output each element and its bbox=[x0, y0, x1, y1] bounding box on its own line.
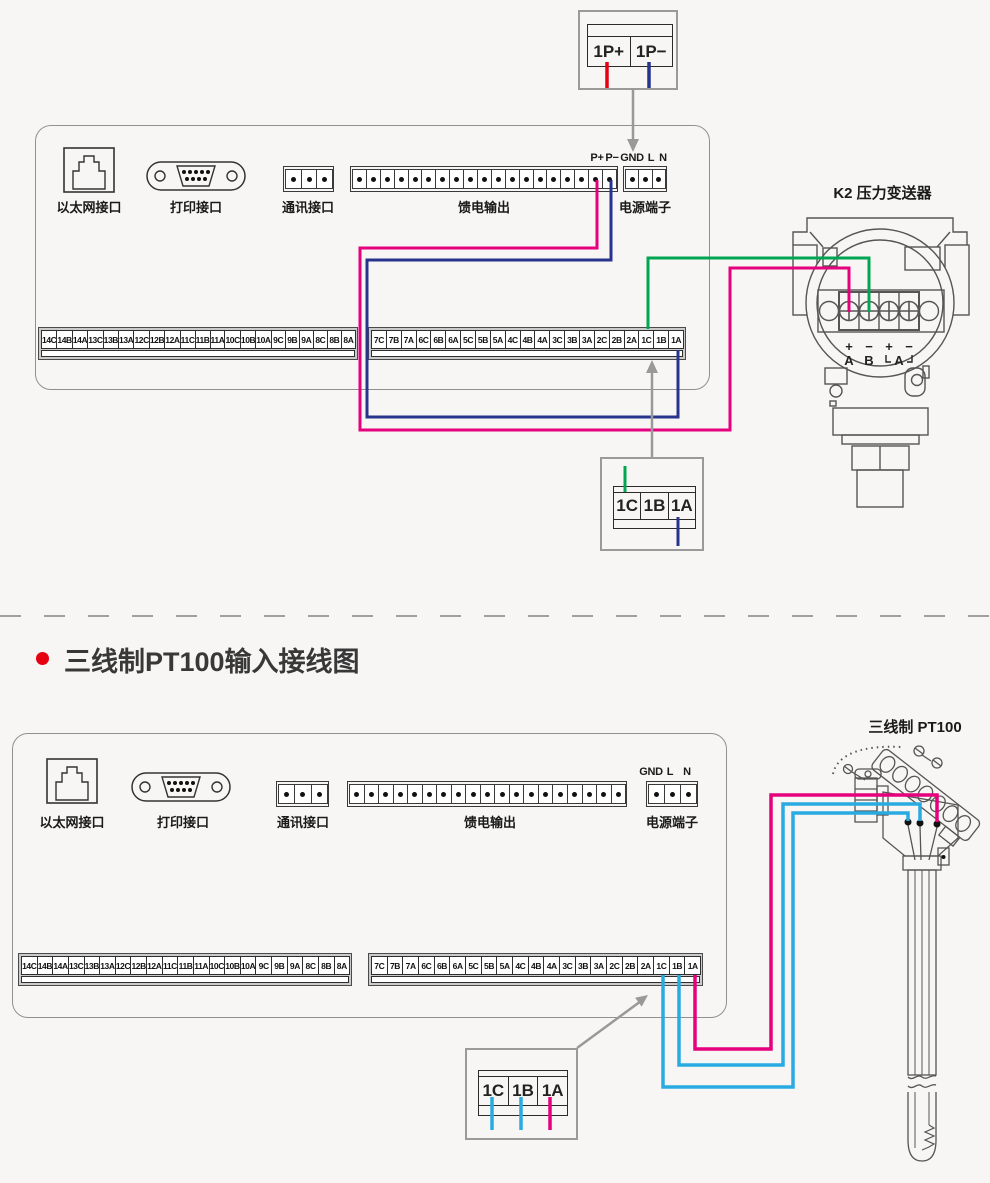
screw-terminal bbox=[519, 169, 534, 189]
screw-terminal bbox=[533, 169, 548, 189]
strip-left-cells: 14C14B14A13C13B13A12C12B12A11C11B11A10C1… bbox=[21, 956, 349, 975]
screw-terminal bbox=[463, 169, 478, 189]
screw-terminal bbox=[652, 169, 666, 189]
terminal-cell: 1C bbox=[479, 1077, 509, 1105]
screw-terminal bbox=[494, 784, 510, 804]
screw-terminal bbox=[393, 784, 409, 804]
terminal-cell: 6B bbox=[434, 956, 451, 975]
terminal-cell: 4C bbox=[512, 956, 529, 975]
terminal-cell: 14C bbox=[41, 330, 57, 349]
screw-terminal bbox=[408, 169, 423, 189]
terminal-cell: 4A bbox=[543, 956, 560, 975]
terminal-cell: 8C bbox=[302, 956, 319, 975]
section-bullet bbox=[36, 652, 49, 665]
printer-port-icon bbox=[131, 768, 231, 806]
terminal-cell: 4B bbox=[520, 330, 536, 349]
section-title: 三线制PT100输入接线图 bbox=[64, 640, 360, 679]
terminal-cell: 7C bbox=[371, 956, 388, 975]
printer-port-label: 打印接口 bbox=[146, 197, 246, 216]
terminal-cell: 11C bbox=[180, 330, 196, 349]
terminal-cell: 11B bbox=[195, 330, 211, 349]
terminal-cell: 1B bbox=[653, 330, 669, 349]
terminal-cell: 6C bbox=[418, 956, 435, 975]
screw-terminal bbox=[422, 784, 438, 804]
strip-sub-row bbox=[21, 976, 349, 983]
terminal-cell: 13A bbox=[118, 330, 134, 349]
transmitter-letter-a: A bbox=[844, 353, 854, 368]
p-plus-label: P+ bbox=[589, 152, 605, 164]
screw-terminal bbox=[465, 784, 481, 804]
screw-terminal bbox=[582, 784, 598, 804]
terminal-cell: 10B bbox=[240, 330, 256, 349]
terminal-cell: 7A bbox=[402, 956, 419, 975]
screw-terminal bbox=[611, 784, 627, 804]
terminal-cell: 13C bbox=[68, 956, 85, 975]
comm-port-label: 通讯接口 bbox=[258, 197, 358, 216]
screw-terminal bbox=[311, 784, 328, 804]
screw-terminal bbox=[364, 784, 380, 804]
printer-port-icon bbox=[146, 157, 246, 195]
loop-power-detail-box: 1P+1P− bbox=[578, 10, 678, 90]
transmitter-sign-2: − bbox=[865, 339, 873, 354]
transmitter-sign-3: + bbox=[885, 339, 893, 354]
power-terminals-bottom bbox=[646, 781, 698, 807]
terminal-cell: 12A bbox=[164, 330, 180, 349]
transmitter-title: K2 压力变送器 bbox=[790, 182, 975, 203]
screw-terminal bbox=[421, 169, 436, 189]
strip-right-cells: 7C7B7A6C6B6A5C5B5A4C4B4A3C3B3A2C2B2A1C1B… bbox=[371, 956, 700, 975]
screw-terminal bbox=[285, 169, 302, 189]
screw-terminal bbox=[278, 784, 295, 804]
terminal-cell: 1B bbox=[669, 956, 686, 975]
ethernet-port-icon bbox=[46, 758, 98, 804]
screw-terminal bbox=[523, 784, 539, 804]
screw-terminal bbox=[509, 784, 525, 804]
p-minus-label: P− bbox=[604, 152, 620, 164]
screw-terminal bbox=[664, 784, 681, 804]
screw-terminal bbox=[451, 784, 467, 804]
terminal-cell: 1A bbox=[538, 1077, 567, 1105]
terminal-cell: 12A bbox=[146, 956, 163, 975]
terminal-cell: 1C bbox=[614, 493, 641, 519]
terminal-cell: 9B bbox=[271, 956, 288, 975]
screw-terminal bbox=[602, 169, 617, 189]
screw-terminal bbox=[574, 169, 589, 189]
screw-terminal bbox=[538, 784, 554, 804]
power-terminals-top bbox=[623, 166, 667, 192]
screw-terminal bbox=[625, 169, 639, 189]
terminal-cell: 14C bbox=[21, 956, 38, 975]
terminal-cell: 7A bbox=[401, 330, 417, 349]
screw-terminal bbox=[352, 169, 367, 189]
terminal-cell: 5C bbox=[460, 330, 476, 349]
printer-port-label: 打印接口 bbox=[133, 812, 233, 831]
screw-terminal bbox=[316, 169, 333, 189]
terminal-cell: 3A bbox=[579, 330, 595, 349]
terminal-cell: 10A bbox=[240, 956, 257, 975]
feed-output-label: 馈电输出 bbox=[440, 812, 540, 831]
screw-terminal bbox=[680, 784, 697, 804]
terminal-cell: 14B bbox=[56, 330, 72, 349]
detail-box-bottom-row bbox=[479, 1105, 567, 1115]
terminal-cell: 13C bbox=[87, 330, 103, 349]
comm-port-label: 通讯接口 bbox=[253, 812, 353, 831]
screw-terminal bbox=[394, 169, 409, 189]
screw-terminal bbox=[407, 784, 423, 804]
terminal-cell: 6B bbox=[430, 330, 446, 349]
line-label-top: L bbox=[645, 152, 657, 164]
terminal-cell: 6C bbox=[416, 330, 432, 349]
terminal-cell: 3C bbox=[549, 330, 565, 349]
power-terminals-label-bottom: 电源端子 bbox=[622, 812, 722, 831]
feed-output-terminals bbox=[347, 781, 627, 807]
screw-terminal bbox=[294, 784, 311, 804]
pt100-sensor-drawing bbox=[825, 740, 990, 1183]
strip-sub-row bbox=[371, 350, 683, 357]
line-label-bottom: L bbox=[664, 766, 676, 778]
terminal-strip-right-bottom: 7C7B7A6C6B6A5C5B5A4C4B4A3C3B3A2C2B2A1C1B… bbox=[368, 953, 703, 986]
transmitter-sign-4: − bbox=[905, 339, 913, 354]
comm-port-terminals bbox=[283, 166, 334, 192]
terminal-cell: 12B bbox=[130, 956, 147, 975]
power-terminals-label-top: 电源端子 bbox=[595, 197, 695, 216]
terminal-cell: 1B bbox=[641, 493, 668, 519]
terminal-cell: 8A bbox=[334, 956, 351, 975]
terminal-cell: 1A bbox=[668, 330, 684, 349]
screw-terminal bbox=[596, 784, 612, 804]
terminal-cell: 4B bbox=[528, 956, 545, 975]
terminal-cell: 14A bbox=[72, 330, 88, 349]
terminal-strip-left-top: 14C14B14A13C13B13A12C12B12A11C11B11A10C1… bbox=[38, 327, 358, 360]
terminal-cell: 11B bbox=[177, 956, 194, 975]
terminal-cell: 3A bbox=[590, 956, 607, 975]
screw-terminal bbox=[505, 169, 520, 189]
screw-terminal bbox=[435, 169, 450, 189]
screw-terminal bbox=[560, 169, 575, 189]
strip-sub-row bbox=[41, 350, 355, 357]
input-channel-detail-box-bottom: 1C1B1A bbox=[465, 1048, 578, 1140]
feed-output-terminals bbox=[350, 166, 618, 192]
transmitter-letter-b: B bbox=[864, 353, 873, 368]
terminal-cell: 10A bbox=[255, 330, 271, 349]
detail-box-bottom-row bbox=[614, 519, 695, 528]
terminal-cell: 1A bbox=[669, 493, 695, 519]
terminal-cell: 12B bbox=[149, 330, 165, 349]
terminal-cell: 1C bbox=[653, 956, 670, 975]
ethernet-port-icon bbox=[63, 147, 115, 193]
terminal-cell: 1A bbox=[684, 956, 701, 975]
terminal-cell: 11A bbox=[210, 330, 226, 349]
terminal-cell: 11C bbox=[162, 956, 179, 975]
terminal-cell: 13B bbox=[84, 956, 101, 975]
transmitter-letter-a2: A bbox=[894, 353, 904, 368]
terminal-cell: 6A bbox=[449, 956, 466, 975]
terminal-cell: 8A bbox=[341, 330, 356, 349]
terminal-cell: 1P+ bbox=[588, 37, 631, 66]
terminal-cell: 3C bbox=[559, 956, 576, 975]
terminal-cell: 2A bbox=[637, 956, 654, 975]
strip-right-cells: 7C7B7A6C6B6A5C5B5A4C4B4A3C3B3A2C2B2A1C1B… bbox=[371, 330, 683, 349]
terminal-cell: 2B bbox=[609, 330, 625, 349]
terminal-cell: 2A bbox=[624, 330, 640, 349]
pt100-title: 三线制 PT100 bbox=[835, 716, 990, 737]
terminal-cell: 1C bbox=[638, 330, 654, 349]
terminal-cell: 12C bbox=[133, 330, 149, 349]
terminal-cell: 5B bbox=[475, 330, 491, 349]
terminal-cell: 6A bbox=[445, 330, 461, 349]
screw-terminal bbox=[477, 169, 492, 189]
neutral-label-bottom: N bbox=[681, 766, 693, 778]
input-channel-cells-bottom: 1C1B1A bbox=[479, 1077, 567, 1105]
terminal-cell: 3B bbox=[564, 330, 580, 349]
terminal-cell: 2B bbox=[622, 956, 639, 975]
terminal-cell: 5A bbox=[496, 956, 513, 975]
terminal-cell: 9A bbox=[287, 956, 304, 975]
strip-left-cells: 14C14B14A13C13B13A12C12B12A11C11B11A10C1… bbox=[41, 330, 355, 349]
strip-sub-row bbox=[371, 976, 700, 983]
input-channel-cells-top: 1C1B1A bbox=[614, 493, 695, 519]
gnd-label-top: GND bbox=[620, 152, 644, 164]
wiring-diagram-page: 1P+1P− 以太网接口 打印接口 通讯接口 馈电输出 P+ P− GND L … bbox=[0, 0, 990, 1183]
terminal-cell: 7C bbox=[371, 330, 387, 349]
terminal-cell: 10B bbox=[224, 956, 241, 975]
screw-terminal bbox=[546, 169, 561, 189]
terminal-cell: 9A bbox=[299, 330, 314, 349]
terminal-cell: 10C bbox=[224, 330, 240, 349]
screw-terminal bbox=[648, 784, 665, 804]
terminal-strip-left-bottom: 14C14B14A13C13B13A12C12B12A11C11B11A10C1… bbox=[18, 953, 352, 986]
terminal-cell: 3B bbox=[575, 956, 592, 975]
terminal-cell: 5B bbox=[481, 956, 498, 975]
terminal-cell: 10C bbox=[209, 956, 226, 975]
terminal-cell: 5A bbox=[490, 330, 506, 349]
screw-terminal bbox=[449, 169, 464, 189]
terminal-cell: 13B bbox=[103, 330, 119, 349]
screw-terminal bbox=[491, 169, 506, 189]
terminal-cell: 13A bbox=[99, 956, 116, 975]
terminal-cell: 7B bbox=[386, 330, 402, 349]
terminal-cell: 9B bbox=[285, 330, 300, 349]
terminal-cell: 7B bbox=[387, 956, 404, 975]
ethernet-port-label: 以太网接口 bbox=[22, 812, 122, 831]
terminal-cell: 4C bbox=[505, 330, 521, 349]
terminal-strip-right-top: 7C7B7A6C6B6A5C5B5A4C4B4A3C3B3A2C2B2A1C1B… bbox=[368, 327, 686, 360]
terminal-cell: 1B bbox=[509, 1077, 539, 1105]
terminal-cell: 11A bbox=[193, 956, 210, 975]
terminal-cell: 1P− bbox=[631, 37, 673, 66]
terminal-cell: 9C bbox=[271, 330, 286, 349]
ethernet-port-label: 以太网接口 bbox=[39, 197, 139, 216]
terminal-cell: 14B bbox=[37, 956, 54, 975]
screw-terminal bbox=[588, 169, 603, 189]
terminal-cell: 2C bbox=[594, 330, 610, 349]
detail-box-top-row bbox=[588, 25, 672, 37]
screw-terminal bbox=[638, 169, 652, 189]
terminal-cell: 2C bbox=[606, 956, 623, 975]
terminal-cell: 14A bbox=[52, 956, 69, 975]
gnd-label-bottom: GND bbox=[638, 766, 664, 778]
screw-terminal bbox=[349, 784, 365, 804]
screw-terminal bbox=[436, 784, 452, 804]
input-channel-detail-box-top: 1C1B1A bbox=[600, 457, 704, 551]
terminal-cell: 8C bbox=[313, 330, 328, 349]
screw-terminal bbox=[378, 784, 394, 804]
terminal-cell: 5C bbox=[465, 956, 482, 975]
transmitter-sign-1: + bbox=[845, 339, 853, 354]
screw-terminal bbox=[366, 169, 381, 189]
terminal-cell: 4A bbox=[534, 330, 550, 349]
screw-terminal bbox=[552, 784, 568, 804]
screw-terminal bbox=[480, 784, 496, 804]
terminal-cell: 12C bbox=[115, 956, 132, 975]
terminal-cell: 8B bbox=[318, 956, 335, 975]
screw-terminal bbox=[380, 169, 395, 189]
neutral-label-top: N bbox=[657, 152, 669, 164]
terminal-cell: 9C bbox=[255, 956, 272, 975]
screw-terminal bbox=[301, 169, 318, 189]
comm-port-terminals bbox=[276, 781, 329, 807]
terminal-cell: 8B bbox=[327, 330, 342, 349]
pressure-transmitter-drawing: + − + − A B A bbox=[780, 205, 990, 520]
feed-output-label: 馈电输出 bbox=[434, 197, 534, 216]
loop-power-cells: 1P+1P− bbox=[588, 37, 672, 66]
screw-terminal bbox=[567, 784, 583, 804]
